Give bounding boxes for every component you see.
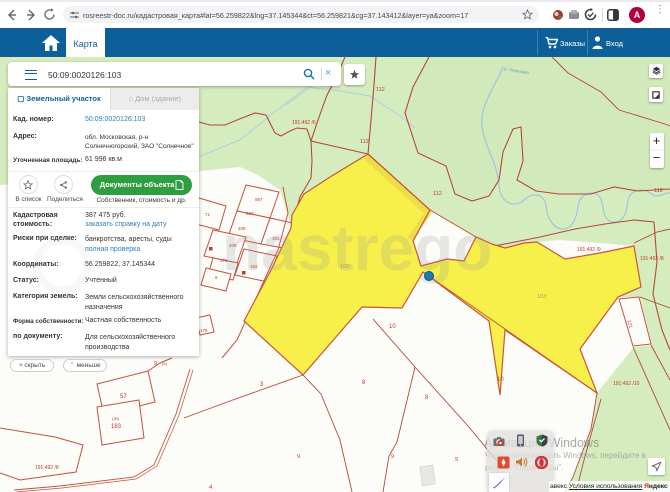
svg-text:191:492 /8: 191:492 /8 — [35, 465, 59, 471]
svg-text:(6): (6) — [162, 361, 168, 366]
svg-text:9: 9 — [154, 361, 157, 367]
svg-text:112: 112 — [654, 188, 663, 194]
svg-text:57: 57 — [120, 394, 127, 400]
svg-text:597: 597 — [255, 197, 263, 202]
svg-text:10: 10 — [389, 324, 396, 330]
svg-text:112: 112 — [360, 139, 369, 145]
svg-text:103: 103 — [537, 294, 546, 300]
svg-text:nastrego: nastrego — [222, 212, 492, 284]
svg-text:183: 183 — [111, 424, 122, 430]
svg-text:191:492 /10: 191:492 /10 — [613, 381, 640, 387]
svg-text:175: 175 — [200, 328, 208, 333]
svg-text:9: 9 — [455, 457, 458, 463]
svg-text:112: 112 — [376, 87, 385, 93]
svg-text:9: 9 — [297, 454, 300, 460]
svg-text:191:492 /6: 191:492 /6 — [292, 120, 316, 126]
svg-text:191:492 /8: 191:492 /8 — [640, 256, 664, 262]
svg-text:(30): (30) — [112, 416, 120, 421]
svg-text:71: 71 — [205, 212, 211, 217]
svg-text:9: 9 — [391, 454, 394, 460]
svg-text:10: 10 — [497, 377, 504, 383]
svg-text:191:492 /9: 191:492 /9 — [577, 247, 601, 253]
svg-text:112: 112 — [433, 191, 442, 197]
